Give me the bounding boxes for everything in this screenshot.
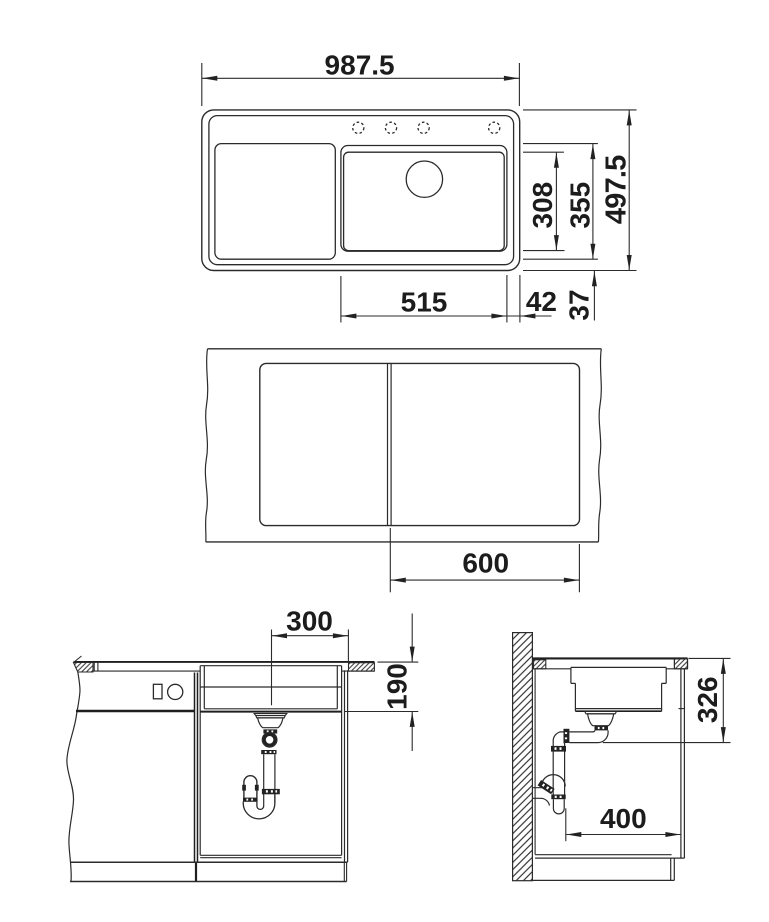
svg-text:400: 400: [600, 803, 647, 834]
svg-text:497.5: 497.5: [600, 155, 632, 224]
svg-text:515: 515: [401, 287, 448, 318]
svg-text:355: 355: [565, 182, 596, 229]
svg-text:300: 300: [286, 606, 333, 637]
svg-text:326: 326: [692, 676, 723, 723]
svg-text:42: 42: [526, 286, 557, 317]
svg-text:600: 600: [462, 548, 509, 579]
svg-text:190: 190: [382, 663, 413, 710]
svg-text:987.5: 987.5: [325, 50, 395, 81]
svg-text:308: 308: [527, 182, 558, 229]
svg-text:37: 37: [564, 289, 595, 320]
